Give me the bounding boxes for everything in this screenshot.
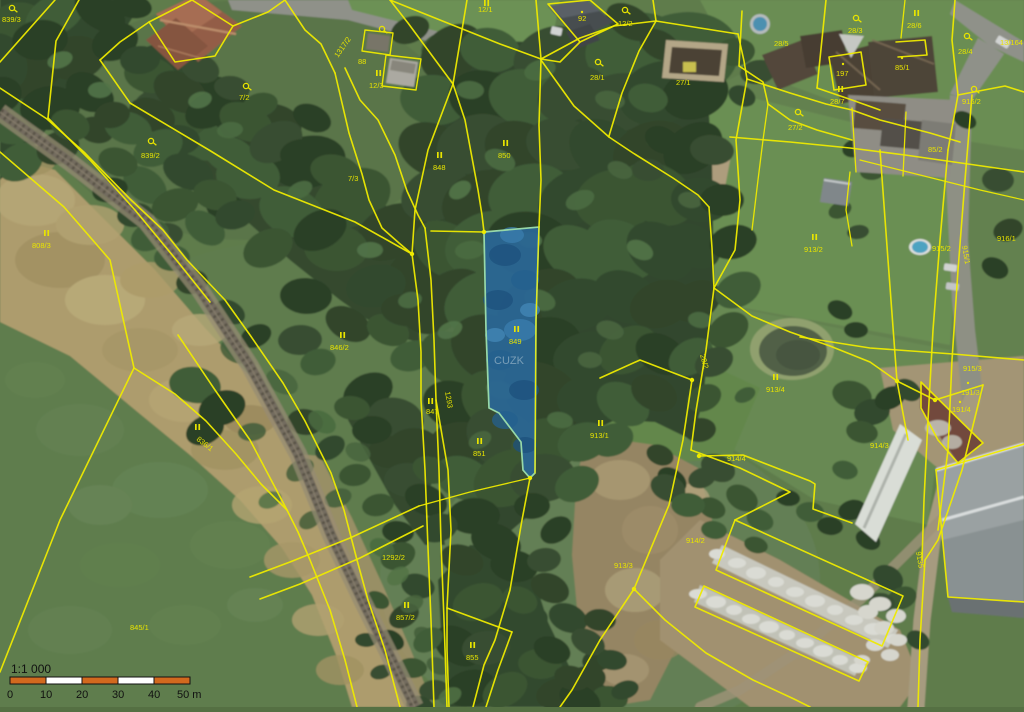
- svg-text:915/2: 915/2: [932, 244, 951, 253]
- svg-text:85/1: 85/1: [895, 63, 910, 72]
- svg-text:839/2: 839/2: [141, 151, 160, 160]
- svg-text:0: 0: [7, 689, 13, 701]
- svg-text:7/3: 7/3: [348, 174, 358, 183]
- svg-text:12/3: 12/3: [369, 81, 384, 90]
- svg-text:28/3: 28/3: [848, 26, 863, 35]
- svg-text:12/2: 12/2: [618, 19, 633, 28]
- svg-text:28/6: 28/6: [907, 21, 922, 30]
- svg-text:914/3: 914/3: [870, 441, 889, 450]
- svg-text:197: 197: [836, 69, 849, 78]
- svg-text:27/2: 27/2: [788, 123, 803, 132]
- svg-text:915/3: 915/3: [963, 364, 982, 373]
- svg-text:914/4: 914/4: [727, 454, 746, 463]
- svg-text:913/4: 913/4: [766, 385, 785, 394]
- svg-text:845/1: 845/1: [130, 623, 149, 632]
- svg-text:50 m: 50 m: [177, 689, 201, 701]
- svg-text:808/3: 808/3: [32, 241, 51, 250]
- svg-text:839/3: 839/3: [2, 15, 21, 24]
- svg-text:88: 88: [358, 57, 366, 66]
- svg-text:850: 850: [498, 151, 511, 160]
- svg-text:848: 848: [433, 163, 446, 172]
- svg-text:28/1: 28/1: [590, 73, 605, 82]
- svg-text:913/1: 913/1: [590, 431, 609, 440]
- svg-text:30: 30: [112, 689, 124, 701]
- svg-text:20: 20: [76, 689, 88, 701]
- svg-text:27/1: 27/1: [676, 78, 691, 87]
- svg-text:913/2: 913/2: [804, 245, 823, 254]
- svg-text:851: 851: [473, 449, 486, 458]
- svg-text:191/4: 191/4: [952, 405, 971, 414]
- svg-text:855: 855: [466, 653, 479, 662]
- svg-text:28/5: 28/5: [774, 39, 789, 48]
- svg-text:916/2: 916/2: [962, 97, 981, 106]
- svg-text:7/2: 7/2: [239, 93, 249, 102]
- svg-text:10: 10: [40, 689, 52, 701]
- svg-text:12/1: 12/1: [478, 5, 493, 14]
- svg-text:85/2: 85/2: [928, 145, 943, 154]
- svg-text:916/1: 916/1: [997, 234, 1016, 243]
- svg-text:1292/2: 1292/2: [382, 553, 405, 562]
- svg-text:40: 40: [148, 689, 160, 701]
- svg-text:CUZK: CUZK: [494, 355, 525, 367]
- svg-text:849: 849: [509, 337, 522, 346]
- svg-text:13/164: 13/164: [1000, 38, 1023, 47]
- svg-text:913/3: 913/3: [614, 561, 633, 570]
- svg-text:914/2: 914/2: [686, 536, 705, 545]
- svg-text:28/7: 28/7: [830, 97, 845, 106]
- svg-text:847: 847: [426, 407, 439, 416]
- svg-text:857/2: 857/2: [396, 613, 415, 622]
- svg-text:846/2: 846/2: [330, 343, 349, 352]
- svg-text:1:1 000: 1:1 000: [11, 662, 51, 676]
- svg-text:191/3: 191/3: [961, 388, 980, 397]
- svg-text:28/4: 28/4: [958, 47, 973, 56]
- svg-text:92: 92: [578, 14, 586, 23]
